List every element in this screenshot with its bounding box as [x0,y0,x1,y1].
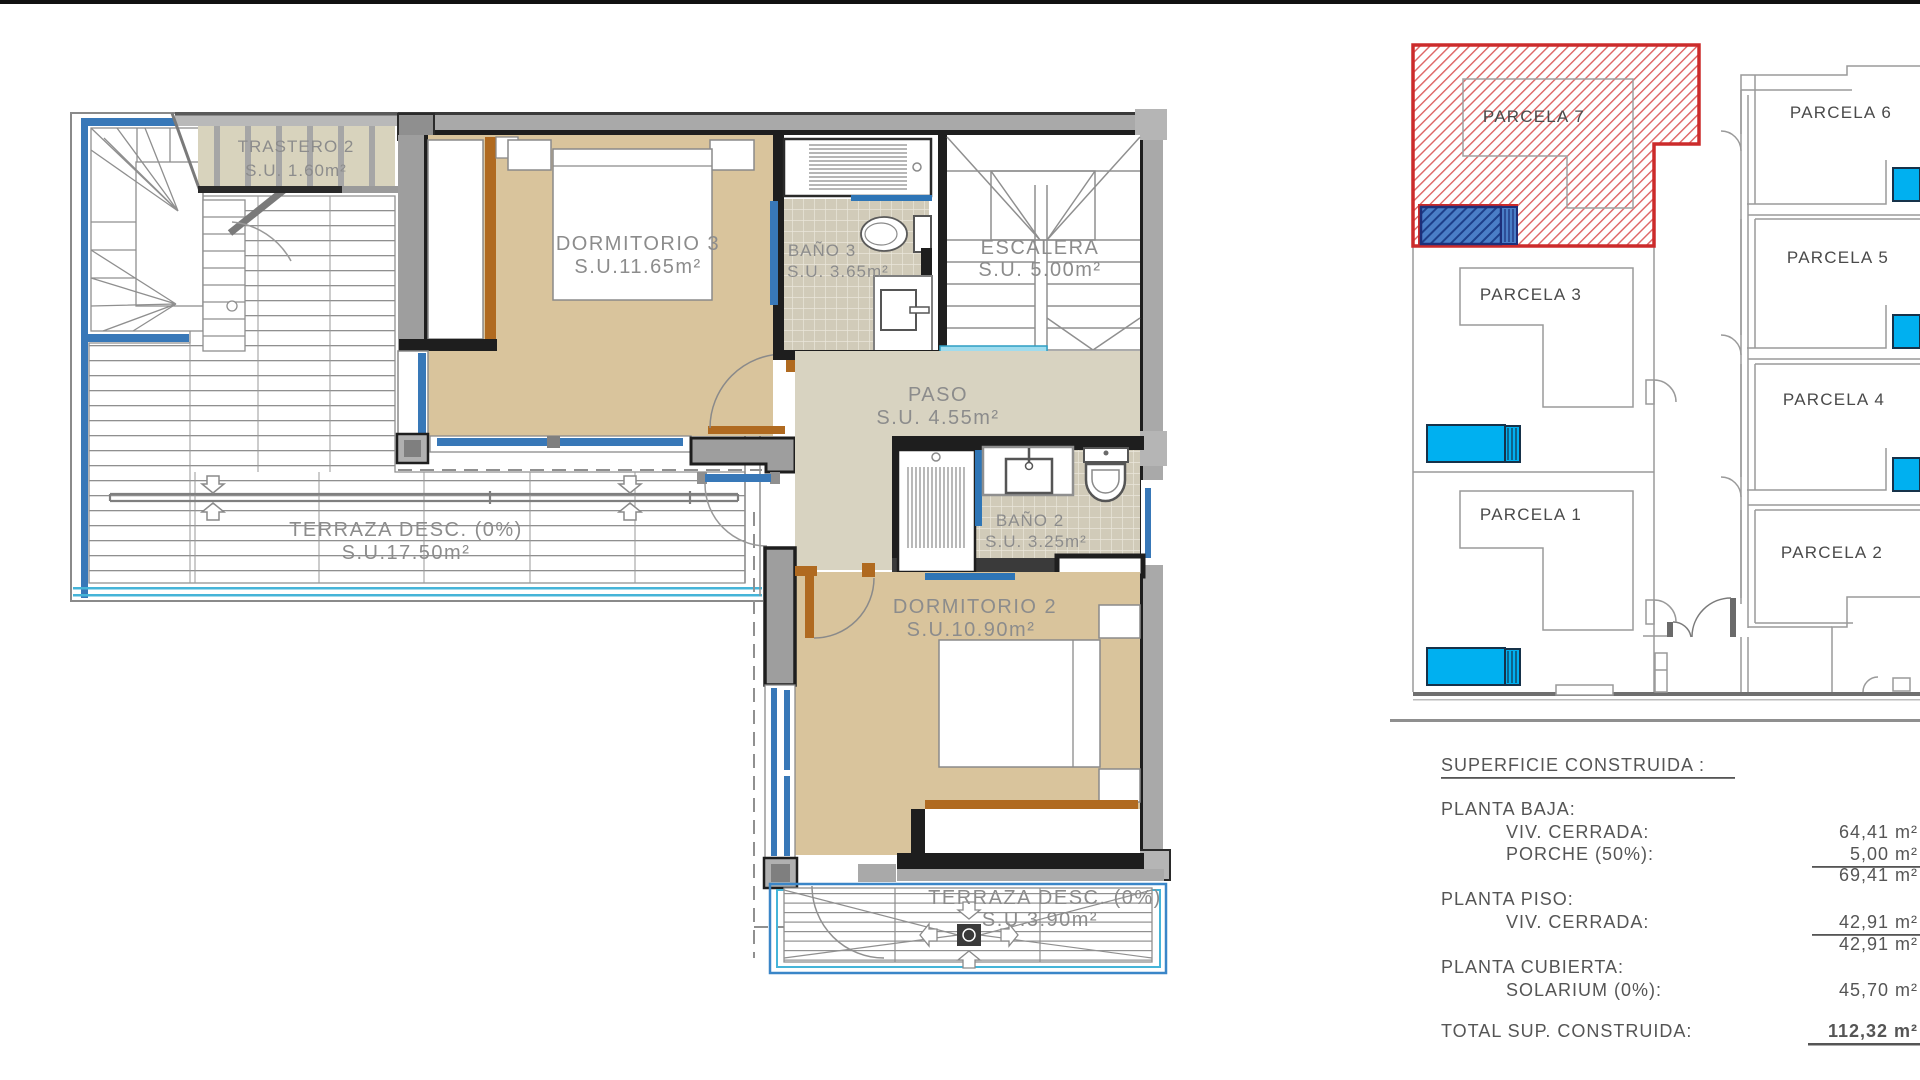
svg-text:S.U.11.65m²: S.U.11.65m² [574,256,701,278]
svg-text:S.U. 4.55m²: S.U. 4.55m² [876,407,999,429]
svg-text:PARCELA 6: PARCELA 6 [1790,103,1892,122]
svg-text:112,32 m²: 112,32 m² [1828,1021,1918,1041]
svg-text:TOTAL SUP. CONSTRUIDA:: TOTAL SUP. CONSTRUIDA: [1441,1021,1692,1041]
svg-text:PASO: PASO [908,384,968,406]
svg-text:TERRAZA DESC. (0%): TERRAZA DESC. (0%) [289,519,523,541]
svg-text:VIV. CERRADA:: VIV. CERRADA: [1506,912,1649,932]
svg-text:PARCELA 2: PARCELA 2 [1781,543,1883,562]
svg-text:TRASTERO 2: TRASTERO 2 [238,137,355,156]
svg-text:S.U. 3.65m²: S.U. 3.65m² [787,262,889,281]
svg-text:PARCELA 3: PARCELA 3 [1480,285,1582,304]
svg-text:PARCELA 5: PARCELA 5 [1787,248,1889,267]
svg-text:SOLARIUM (0%):: SOLARIUM (0%): [1506,980,1662,1000]
svg-text:PARCELA 7: PARCELA 7 [1483,107,1585,126]
svg-text:PLANTA PISO:: PLANTA PISO: [1441,889,1574,909]
svg-text:PLANTA CUBIERTA:: PLANTA CUBIERTA: [1441,957,1624,977]
svg-text:DORMITORIO 2: DORMITORIO 2 [893,596,1057,618]
svg-text:PARCELA 4: PARCELA 4 [1783,390,1885,409]
svg-text:TERRAZA DESC. (0%): TERRAZA DESC. (0%) [928,887,1162,909]
svg-text:42,91 m²: 42,91 m² [1839,934,1918,954]
svg-text:69,41 m²: 69,41 m² [1839,865,1918,885]
svg-text:S.U.3.90m²: S.U.3.90m² [982,909,1098,931]
svg-text:PORCHE (50%):: PORCHE (50%): [1506,844,1654,864]
svg-text:64,41 m²: 64,41 m² [1839,822,1918,842]
svg-text:ESCALERA: ESCALERA [981,237,1100,259]
svg-text:S.U. 5.00m²: S.U. 5.00m² [978,259,1101,281]
svg-text:S.U.17.50m²: S.U.17.50m² [342,542,471,564]
svg-text:S.U. 1.60m²: S.U. 1.60m² [245,161,347,180]
svg-text:42,91 m²: 42,91 m² [1839,912,1918,932]
svg-text:SUPERFICIE CONSTRUIDA :: SUPERFICIE CONSTRUIDA : [1441,755,1705,775]
svg-text:5,00 m²: 5,00 m² [1850,844,1918,864]
svg-text:BAÑO 3: BAÑO 3 [788,241,856,260]
svg-text:PLANTA BAJA:: PLANTA BAJA: [1441,799,1576,819]
svg-text:S.U. 3.25m²: S.U. 3.25m² [985,532,1087,551]
svg-text:DORMITORIO 3: DORMITORIO 3 [556,233,720,255]
svg-text:PARCELA 1: PARCELA 1 [1480,505,1582,524]
svg-text:45,70 m²: 45,70 m² [1839,980,1918,1000]
svg-text:BAÑO 2: BAÑO 2 [996,511,1064,530]
svg-text:VIV. CERRADA:: VIV. CERRADA: [1506,822,1649,842]
svg-text:S.U.10.90m²: S.U.10.90m² [907,619,1036,641]
